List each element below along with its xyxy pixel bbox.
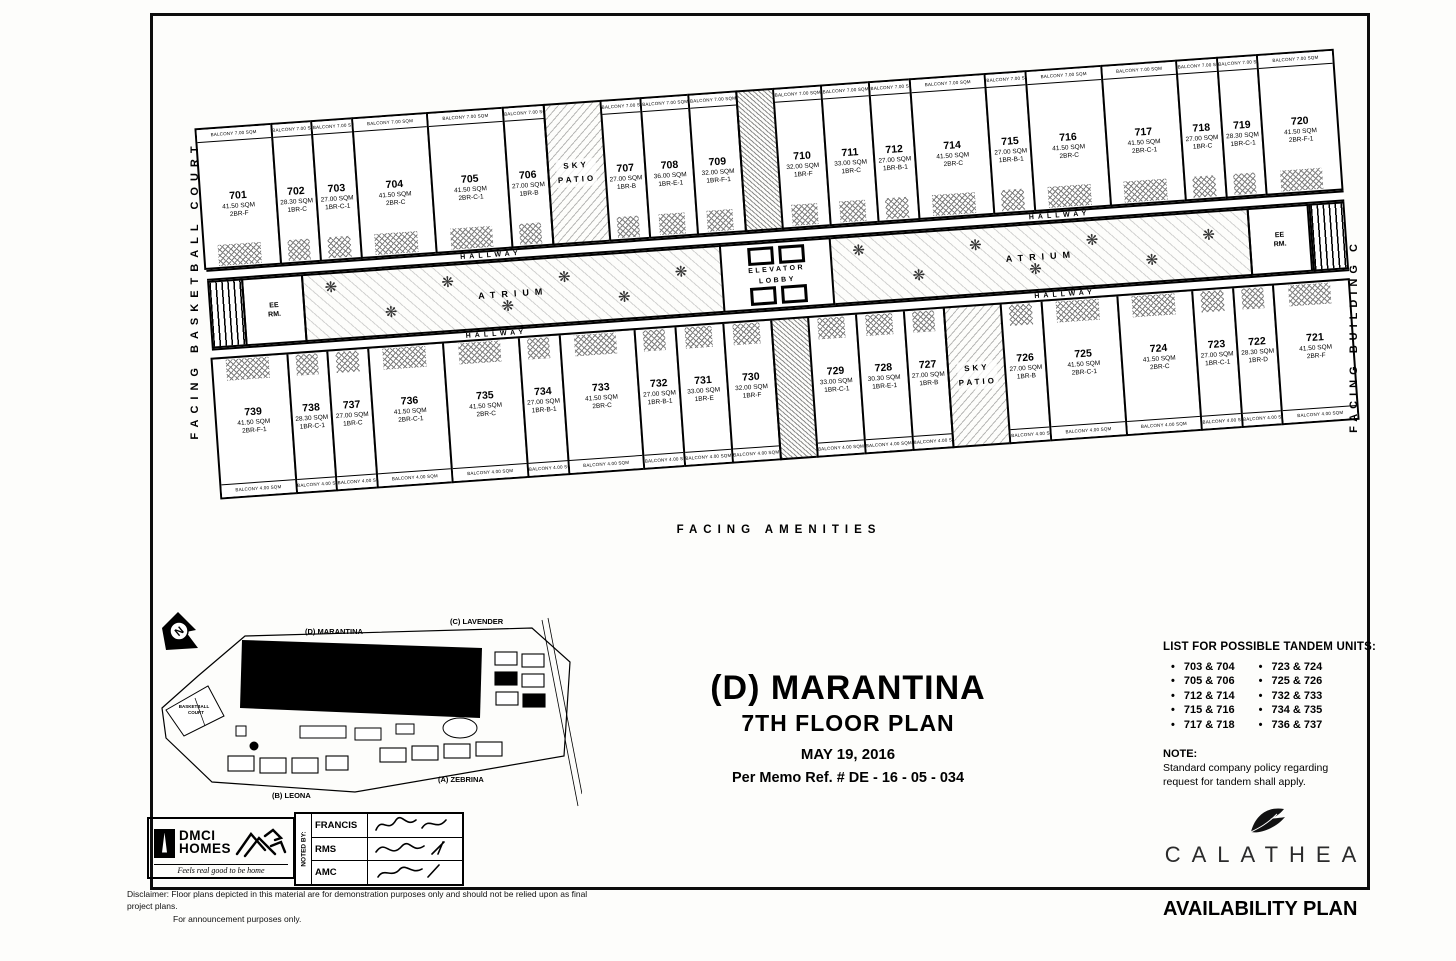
unit-type: 2BR-F xyxy=(230,209,249,217)
unit-733: 73341.50 SQM2BR-CBALCONY 4.00 SQM xyxy=(558,328,645,475)
unit-number: 726 xyxy=(1016,351,1034,364)
signature-area xyxy=(368,838,462,861)
tree-icon: ❋ xyxy=(912,268,926,284)
tandem-column-2: 723 & 724725 & 726732 & 733734 & 735736 … xyxy=(1259,658,1323,733)
tree-icon: ❋ xyxy=(674,265,688,281)
unit-number: 707 xyxy=(616,161,634,174)
unit-735: 73541.50 SQM2BR-CBALCONY 4.00 SQM xyxy=(442,336,529,483)
tree-icon: ❋ xyxy=(324,280,338,296)
tree-icon: ❋ xyxy=(1145,253,1159,269)
signature-scribble xyxy=(368,814,456,836)
building-leona xyxy=(228,756,348,773)
unit-736: 73641.50 SQM2BR-C-1BALCONY 4.00 SQM xyxy=(367,341,454,488)
amenity-shapes xyxy=(236,718,477,750)
unit-label: 73341.50 SQM2BR-C xyxy=(560,330,642,460)
unit-type: 2BR-C xyxy=(1150,362,1170,370)
unit-type: 1BR-E-1 xyxy=(658,179,683,188)
homes-wordmark: HOMES xyxy=(179,843,231,856)
unit-label: 70141.50 SQM2BR-F xyxy=(197,138,279,268)
ee-room-label: EE RM. xyxy=(1267,230,1292,250)
unit-721: 72141.50 SQM2BR-FBALCONY 4.00 SQM xyxy=(1272,278,1359,425)
unit-label: 71441.50 SQM2BR-C xyxy=(912,88,994,218)
building-zebrina xyxy=(380,742,502,762)
unit-number: 705 xyxy=(461,172,479,185)
unit-type: 1BR-B-1 xyxy=(999,155,1024,164)
unit-number: 712 xyxy=(885,142,903,155)
tandem-pair: 715 & 716 xyxy=(1171,704,1235,716)
unit-label: 72541.50 SQM2BR-C-1 xyxy=(1043,296,1125,426)
unit-label: 70441.50 SQM2BR-C xyxy=(354,127,436,257)
unit-739: 73941.50 SQM2BR-F-1BALCONY 4.00 SQM xyxy=(210,352,297,499)
balcony-label: BALCONY 4.00 SQM xyxy=(1243,410,1282,426)
unit-type: 1BR-F xyxy=(794,170,813,178)
unit-type: 1BR-C-1 xyxy=(299,421,325,430)
unit-717: BALCONY 7.00 SQM71741.50 SQM2BR-C-1 xyxy=(1100,60,1187,207)
ee-room-label: EE RM. xyxy=(262,301,287,321)
lavender-map-label: (C) LAVENDER xyxy=(450,617,504,626)
unit-number: 721 xyxy=(1306,331,1324,344)
unit-area: 33.00 SQM xyxy=(687,386,720,395)
unit-type: 1BR-B-1 xyxy=(531,405,556,414)
floor-plan: BALCONY 7.00 SQM70141.50 SQM2BR-FBALCONY… xyxy=(196,49,1359,500)
unit-area: 33.00 SQM xyxy=(834,158,867,167)
unit-area: 27.00 SQM xyxy=(1009,363,1042,372)
balcony-label: BALCONY 4.00 SQM xyxy=(529,460,568,476)
unit-number: 736 xyxy=(400,394,418,407)
road-lines xyxy=(542,618,582,806)
facing-amenities-label: FACING AMENITIES xyxy=(618,524,940,536)
unit-area: 41.50 SQM xyxy=(585,393,618,402)
unit-number: 715 xyxy=(1001,134,1019,147)
unit-number: 716 xyxy=(1059,130,1077,143)
unit-type: 2BR-C xyxy=(943,159,963,167)
unit-type: 2BR-C-1 xyxy=(398,415,424,424)
unit-area: 41.50 SQM xyxy=(1299,343,1332,352)
north-arrow-icon: N xyxy=(162,612,198,650)
unit-label: 72141.50 SQM2BR-F xyxy=(1274,280,1356,410)
hallway-label: HALLWAY xyxy=(1029,210,1091,221)
tandem-pair: 705 & 706 xyxy=(1171,675,1235,687)
title-block: (D) MARANTINA 7TH FLOOR PLAN MAY 19, 201… xyxy=(638,669,1058,786)
unit-label: 73133.00 SQM1BR-E xyxy=(676,324,731,452)
unit-type: 1BR-B-1 xyxy=(883,163,908,172)
unit-area: 41.50 SQM xyxy=(222,201,255,210)
signature-row: FRANCIS xyxy=(312,814,462,838)
calathea-wordmark: CALATHEA xyxy=(1150,842,1382,868)
unit-number: 717 xyxy=(1134,125,1152,138)
noted-by-header: NOTED BY: xyxy=(296,814,312,884)
plan-subtitle: 7TH FLOOR PLAN xyxy=(638,710,1058,737)
tandem-pair: 725 & 726 xyxy=(1259,675,1323,687)
unit-number: 701 xyxy=(229,188,247,201)
unit-type: 1BR-C xyxy=(841,166,861,174)
unit-number: 709 xyxy=(708,155,726,168)
unit-716: BALCONY 7.00 SQM71641.50 SQM2BR-C xyxy=(1024,65,1111,212)
unit-type: 1BR-B xyxy=(919,379,939,387)
balcony-label: BALCONY 4.00 SQM xyxy=(913,433,952,449)
unit-type: 2BR-C xyxy=(386,198,406,206)
unit-type: 1BR-B-1 xyxy=(647,397,672,406)
unit-label: 73032.00 SQM1BR-F xyxy=(724,321,779,449)
tree-icon: ❋ xyxy=(384,305,398,321)
unit-label: 71641.50 SQM2BR-C xyxy=(1027,80,1109,210)
elevator-bank-bottom xyxy=(749,284,807,306)
hallway-label: HALLWAY xyxy=(460,250,522,261)
tandem-pair: 736 & 737 xyxy=(1259,719,1323,731)
unit-type: 2BR-F xyxy=(1307,352,1326,360)
unit-type: 1BR-C xyxy=(1193,142,1213,150)
sky-patio-label: SKY PATIO xyxy=(956,360,998,392)
balcony-label: BALCONY 4.00 SQM xyxy=(1202,413,1241,429)
dmci-homes-logo: DMCI HOMES Feels real good to be home xyxy=(147,817,295,879)
unit-label: 70541.50 SQM2BR-C-1 xyxy=(429,122,511,252)
unit-type: 1BR-C-1 xyxy=(325,202,351,211)
tandem-pair: 732 & 733 xyxy=(1259,690,1323,702)
unit-type: 1BR-C-1 xyxy=(1205,358,1231,367)
signer-name: AMC xyxy=(312,861,368,884)
unit-number: 714 xyxy=(943,138,961,151)
unit-714: BALCONY 7.00 SQM71441.50 SQM2BR-C xyxy=(909,73,996,220)
tree-icon: ❋ xyxy=(1085,232,1099,248)
unit-number: 724 xyxy=(1149,342,1167,355)
tree-icon: ❋ xyxy=(852,243,866,259)
unit-720: BALCONY 7.00 SQM72041.50 SQM2BR-F-1 xyxy=(1256,49,1343,196)
tree-icon: ❋ xyxy=(1202,228,1216,244)
unit-area: 27.00 SQM xyxy=(1185,133,1218,142)
unit-number: 723 xyxy=(1207,337,1225,350)
unit-label: 73541.50 SQM2BR-C xyxy=(444,338,526,468)
tree-icon: ❋ xyxy=(558,269,572,285)
unit-type: 1BR-F-1 xyxy=(706,176,731,185)
unit-704: BALCONY 7.00 SQM70441.50 SQM2BR-C xyxy=(351,112,438,259)
tandem-pair: 712 & 714 xyxy=(1171,690,1235,702)
dmci-emblem-icon xyxy=(154,829,175,858)
unit-type: 2BR-F-1 xyxy=(1289,135,1314,144)
unit-number: 739 xyxy=(244,405,262,418)
site-map: N BASKETBALL COURT (D) MARANTINA (C) LAV… xyxy=(150,606,582,812)
unit-number: 708 xyxy=(660,158,678,171)
elevator-icon xyxy=(778,244,805,264)
leona-map-label: (B) LEONA xyxy=(272,791,311,800)
signer-name: FRANCIS xyxy=(312,814,368,837)
unit-number: 704 xyxy=(385,177,403,190)
unit-type: 1BR-C-1 xyxy=(1230,139,1256,148)
basketball-court: BASKETBALL COURT xyxy=(166,686,224,736)
unit-type: 2BR-C xyxy=(476,410,496,418)
unit-number: 731 xyxy=(694,373,712,386)
unit-type: 2BR-C xyxy=(1059,151,1079,159)
unit-number: 703 xyxy=(327,181,345,194)
tandem-list-title: LIST FOR POSSIBLE TANDEM UNITS: xyxy=(1163,641,1381,653)
tree-icon: ❋ xyxy=(617,289,631,305)
unit-area: 27.00 SQM xyxy=(512,181,545,190)
unit-number: 725 xyxy=(1074,347,1092,360)
balcony-label: BALCONY 4.00 SQM xyxy=(337,474,376,490)
plan-date: MAY 19, 2016 xyxy=(638,746,1058,763)
tandem-pair: 703 & 704 xyxy=(1171,661,1235,673)
unit-label: 73641.50 SQM2BR-C-1 xyxy=(369,344,451,474)
unit-type: 1BR-E-1 xyxy=(872,381,897,390)
memo-reference: Per Memo Ref. # DE - 16 - 05 - 034 xyxy=(638,770,1058,786)
marantina-map-label: (D) MARANTINA xyxy=(305,627,363,636)
calathea-leaf-icon xyxy=(1247,804,1287,838)
stairs-icon xyxy=(1308,201,1349,272)
unit-label: 72441.50 SQM2BR-C xyxy=(1118,291,1200,421)
ee-room-left: EE RM. xyxy=(241,274,308,347)
tree-icon: ❋ xyxy=(969,238,983,254)
tandem-pair: 734 & 735 xyxy=(1259,704,1323,716)
unit-label: 73941.50 SQM2BR-F-1 xyxy=(213,355,295,485)
hallway-label: HALLWAY xyxy=(1034,289,1096,300)
unit-number: 738 xyxy=(302,401,320,414)
svg-text:BASKETBALL: BASKETBALL xyxy=(179,704,210,709)
unit-type: 2BR-C-1 xyxy=(458,193,484,202)
unit-type: 1BR-E xyxy=(694,394,714,402)
unit-725: 72541.50 SQM2BR-C-1BALCONY 4.00 SQM xyxy=(1040,294,1127,441)
unit-label: 72830.30 SQM1BR-E-1 xyxy=(857,311,912,439)
unit-number: 711 xyxy=(841,146,859,159)
unit-number: 706 xyxy=(519,168,537,181)
unit-type: 1BR-F xyxy=(742,391,761,399)
building-lavender xyxy=(495,652,545,707)
unit-label: 71133.00 SQM1BR-C xyxy=(823,96,878,224)
dmci-tagline: Feels real good to be home xyxy=(154,864,288,876)
signer-name: RMS xyxy=(312,838,368,861)
balcony-label: BALCONY 4.00 SQM xyxy=(1011,426,1050,442)
unit-number: 728 xyxy=(874,361,892,374)
building-marantina-highlighted xyxy=(240,640,482,718)
tandem-column-1: 703 & 704705 & 706712 & 714715 & 716717 … xyxy=(1171,658,1235,733)
signature-scribble xyxy=(368,861,456,883)
balcony-label: BALCONY 4.00 SQM xyxy=(644,452,683,468)
unit-type: 2BR-C-1 xyxy=(1072,367,1098,376)
tandem-units-panel: LIST FOR POSSIBLE TANDEM UNITS: 703 & 70… xyxy=(1163,641,1381,789)
signature-area xyxy=(368,861,462,884)
unit-type: 2BR-F-1 xyxy=(242,426,267,435)
unit-area: 28.30 SQM xyxy=(280,197,313,206)
elevator-icon xyxy=(749,287,776,307)
disclaimer-line-1: Disclaimer: Floor plans depicted in this… xyxy=(127,888,607,913)
unit-area: 27.00 SQM xyxy=(912,370,945,379)
unit-type: 1BR-C-1 xyxy=(824,385,850,394)
signature-area xyxy=(368,814,462,837)
unit-number: 729 xyxy=(826,364,844,377)
unit-number: 733 xyxy=(592,381,610,394)
facing-basketball-court-label: FACING BASKETBALL COURT xyxy=(189,117,201,463)
signature-scribble xyxy=(368,838,456,860)
unit-type: 1BR-B xyxy=(519,189,539,197)
unit-number: 734 xyxy=(534,385,552,398)
plan-title: (D) MARANTINA xyxy=(638,669,1058,708)
tree-icon: ❋ xyxy=(441,275,455,291)
tandem-pair: 717 & 718 xyxy=(1171,719,1235,731)
signature-row: RMS xyxy=(312,838,462,862)
unit-number: 732 xyxy=(650,376,668,389)
svg-text:COURT: COURT xyxy=(188,710,204,715)
noted-by-label: NOTED BY: xyxy=(300,831,307,866)
disclaimer: Disclaimer: Floor plans depicted in this… xyxy=(127,888,607,925)
tree-icon: ❋ xyxy=(501,299,515,315)
unit-label: 71032.00 SQM1BR-F xyxy=(775,100,830,228)
unit-type: 1BR-B xyxy=(617,182,637,190)
zebrina-map-label: (A) ZEBRINA xyxy=(438,775,484,784)
noted-by-table: NOTED BY: FRANCISRMSAMC xyxy=(294,812,464,886)
unit-area: 41.50 SQM xyxy=(1143,354,1176,363)
note-body: Standard company policy regarding reques… xyxy=(1163,762,1365,789)
unit-number: 730 xyxy=(742,370,760,383)
unit-label: 71741.50 SQM2BR-C-1 xyxy=(1103,75,1185,205)
unit-area: 41.50 SQM xyxy=(469,401,502,410)
unit-label: 72933.00 SQM1BR-C-1 xyxy=(809,315,864,443)
elevator-icon xyxy=(747,246,774,266)
elevator-icon xyxy=(780,284,807,304)
unit-type: 1BR-B xyxy=(1017,372,1037,380)
unit-label: 70836.00 SQM1BR-E-1 xyxy=(643,109,698,237)
unit-type: 1BR-C xyxy=(343,419,363,427)
unit-label: 70932.00 SQM1BR-F-1 xyxy=(691,105,746,233)
unit-705: BALCONY 7.00 SQM70541.50 SQM2BR-C-1 xyxy=(426,107,513,254)
unit-number: 737 xyxy=(342,398,360,411)
unit-number: 727 xyxy=(918,358,936,371)
unit-area: 41.50 SQM xyxy=(1052,143,1085,152)
signature-row: AMC xyxy=(312,861,462,884)
facing-building-c-label: FACING BUILDING C xyxy=(1348,223,1360,449)
unit-area: 41.50 SQM xyxy=(378,190,411,199)
hallway-label: HALLWAY xyxy=(466,329,528,340)
unit-701: BALCONY 7.00 SQM70141.50 SQM2BR-F xyxy=(194,123,281,270)
unit-area: 27.00 SQM xyxy=(609,174,642,183)
unit-area: 32.00 SQM xyxy=(735,382,768,391)
house-sketch-icon xyxy=(235,826,287,860)
unit-area: 28.30 SQM xyxy=(1241,347,1274,356)
disclaimer-line-2: For announcement purposes only. xyxy=(173,913,607,925)
unit-number: 702 xyxy=(287,184,305,197)
unit-type: 2BR-C xyxy=(592,401,612,409)
note-title: NOTE: xyxy=(1163,748,1381,760)
unit-area: 41.50 SQM xyxy=(936,151,969,160)
unit-type: 1BR-D xyxy=(1248,356,1268,364)
unit-type: 2BR-C-1 xyxy=(1132,146,1158,155)
unit-724: 72441.50 SQM2BR-CBALCONY 4.00 SQM xyxy=(1116,289,1203,436)
unit-number: 735 xyxy=(476,389,494,402)
elevator-lobby: ELEVATOR LOBBY xyxy=(719,237,835,313)
unit-number: 710 xyxy=(793,149,811,162)
unit-area: 32.00 SQM xyxy=(786,161,819,170)
sky-patio-label: SKY PATIO xyxy=(556,157,598,189)
unit-number: 718 xyxy=(1192,121,1210,134)
balcony-label: BALCONY 4.00 SQM xyxy=(297,476,336,492)
tandem-pair: 723 & 724 xyxy=(1259,661,1323,673)
unit-area: 27.00 SQM xyxy=(336,410,369,419)
unit-number: 722 xyxy=(1248,335,1266,348)
availability-plan-title: AVAILABILITY PLAN xyxy=(1163,898,1357,921)
unit-number: 719 xyxy=(1233,118,1251,131)
unit-number: 720 xyxy=(1291,114,1309,127)
tree-icon: ❋ xyxy=(1029,262,1043,278)
right-end-cap: EE RM. xyxy=(1249,201,1350,276)
unit-label: 72041.50 SQM2BR-F-1 xyxy=(1259,64,1341,194)
ee-room-right: EE RM. xyxy=(1247,204,1314,277)
unit-type: 1BR-C xyxy=(287,205,307,213)
left-end-cap: EE RM. xyxy=(207,274,308,349)
